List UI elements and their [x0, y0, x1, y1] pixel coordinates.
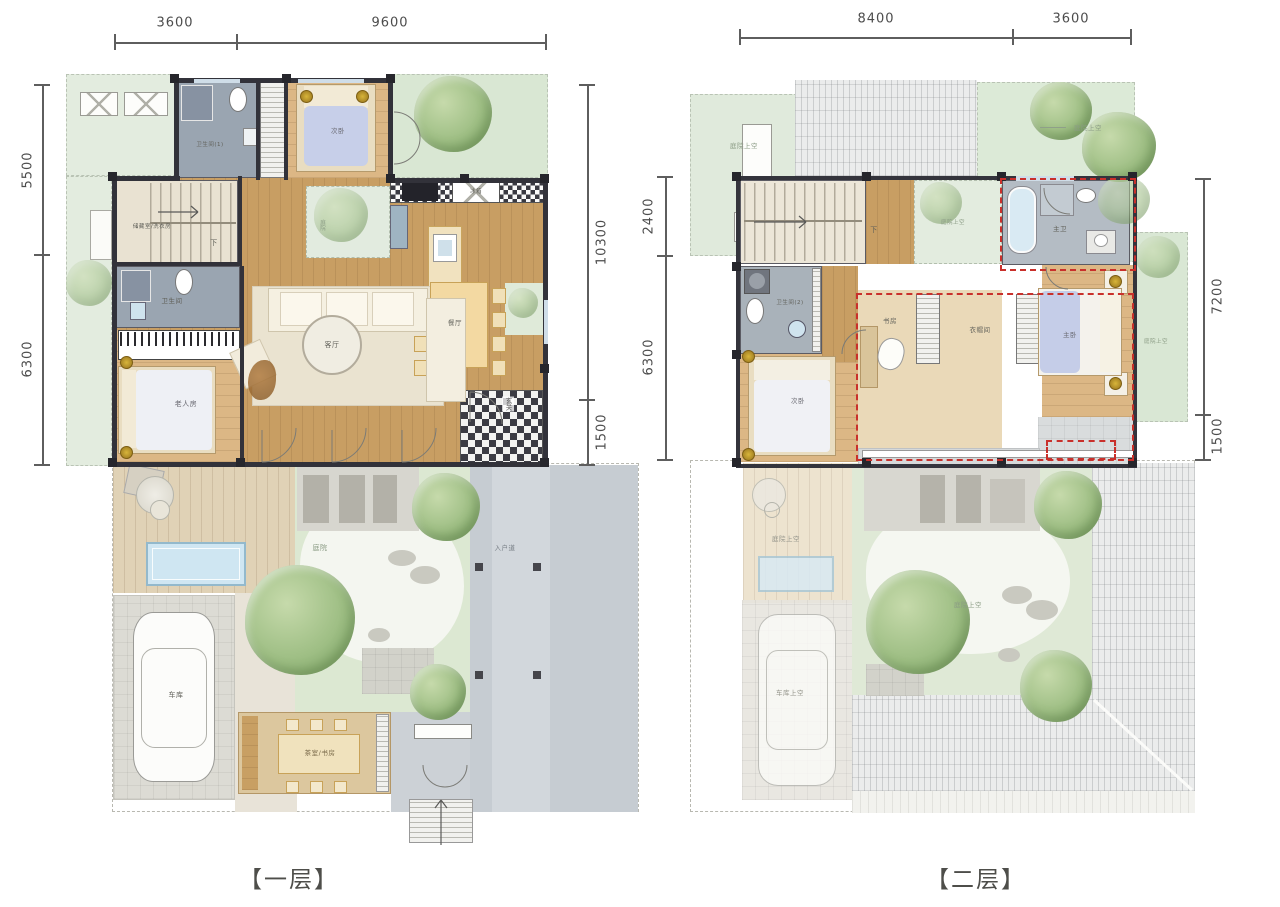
column: [460, 174, 469, 183]
fridge-label: 冰箱: [470, 187, 482, 195]
dimension-tick: [739, 29, 741, 45]
column: [386, 174, 395, 183]
sofa-cushion: [372, 292, 414, 326]
dim-f1-left-1: 5500: [21, 151, 36, 188]
dim-f1-top-2: 9600: [371, 16, 408, 31]
dimension-tick: [579, 84, 595, 86]
dimension-tick: [657, 459, 673, 461]
dining-chair: [492, 312, 506, 328]
dimension-tick: [579, 464, 595, 466]
walkway-path: [492, 465, 550, 812]
feature-stone: [303, 475, 329, 523]
red-dashed-bay-window: [1046, 440, 1116, 460]
dimension-line: [587, 85, 589, 465]
entry-bench: [414, 724, 472, 739]
dimension-tick: [1195, 178, 1211, 180]
column: [732, 262, 741, 271]
wall: [112, 462, 548, 467]
dimension-tick: [1130, 29, 1132, 45]
wall: [256, 80, 260, 180]
column: [386, 74, 395, 83]
inner-void-label: 庭院上空: [941, 218, 965, 226]
bed-duvet: [304, 106, 368, 166]
column: [540, 364, 549, 373]
dimension-tick: [657, 255, 673, 257]
dim-f1-right-1: 10300: [595, 219, 610, 265]
stepping-stone: [998, 648, 1020, 662]
wall: [112, 176, 117, 467]
walkway-label: 入户道: [495, 542, 516, 552]
wall: [112, 262, 240, 266]
kitchen-unit: [390, 205, 408, 249]
red-dashed-outline: [1000, 178, 1136, 271]
garden-tl-label: 庭院上空: [730, 140, 758, 150]
tree: [1020, 650, 1092, 722]
garage-label: 车库: [169, 690, 184, 700]
chaise: [426, 298, 466, 402]
roof-band: [852, 695, 1195, 791]
tree: [314, 188, 368, 242]
dining-chair: [492, 336, 506, 352]
dimension-line: [1203, 179, 1205, 460]
dimension-tick: [545, 34, 547, 50]
gold-lamp: [356, 90, 369, 103]
window: [544, 300, 548, 344]
stove: [402, 182, 438, 201]
column: [732, 350, 741, 359]
window: [298, 79, 364, 83]
stool: [286, 781, 299, 793]
dimension-line: [665, 177, 667, 460]
wall: [238, 176, 242, 266]
inner-garden-label: 庭院: [318, 220, 326, 231]
stepping-stone: [368, 628, 390, 642]
floor-plan-canvas: { "captions": {"floor1": "【一层】", "floor2…: [0, 0, 1280, 907]
courtyard-void-label: 庭院上空: [954, 599, 982, 609]
bed-pillow-band: [122, 370, 136, 448]
column: [108, 172, 117, 181]
dim-f2-right-1: 7200: [1211, 277, 1226, 314]
floor1-caption: 【一层】: [239, 860, 339, 894]
elder-room-label: 老人房: [175, 399, 198, 409]
shower: [181, 85, 213, 121]
red-dashed-outline: [856, 293, 1134, 461]
tree: [66, 260, 112, 306]
dining-chair: [492, 288, 506, 304]
column: [540, 458, 549, 467]
wall: [240, 266, 244, 462]
dimension-tick: [34, 464, 50, 466]
toilet: [229, 87, 247, 112]
pool-void: [758, 556, 834, 592]
bedroom-2-label: 次卧: [331, 125, 345, 135]
tree: [412, 473, 480, 541]
master-bedroom-label: 主卧: [1063, 329, 1077, 339]
post: [533, 671, 541, 679]
feature-stone: [339, 475, 365, 523]
dimension-line: [115, 42, 545, 44]
dimension-tick: [114, 34, 116, 50]
pergola-panel: [124, 92, 168, 116]
bathroom-1-label: 卫生间(1): [196, 140, 223, 148]
dimension-line: [42, 85, 44, 465]
entry-steps: [409, 799, 473, 843]
storage-label: 储藏室/洗衣房: [133, 222, 171, 230]
garden-tr-label: 庭院上空: [1074, 122, 1102, 132]
car-cabin: [766, 650, 828, 750]
dimension-tick: [236, 34, 238, 50]
column: [732, 172, 741, 181]
gold-lamp: [300, 90, 313, 103]
wall: [388, 78, 393, 183]
shoji-screen: [376, 714, 389, 792]
stepping-stone: [1026, 600, 1058, 620]
stool: [334, 781, 347, 793]
dimension-line: [740, 37, 1132, 39]
closet-label: 衣帽间: [970, 324, 991, 334]
piano-keys: [120, 332, 238, 346]
stair-direction-label: 下: [210, 238, 218, 248]
stepping-stone: [410, 566, 440, 584]
bathroom-2-label: 卫生间(2): [776, 298, 803, 306]
wall: [174, 78, 179, 180]
dim-f2-right-2: 1500: [1211, 417, 1226, 454]
sink: [130, 302, 146, 320]
feature-stone: [956, 475, 981, 523]
pergola-panel: [80, 92, 118, 116]
tree: [245, 565, 355, 675]
courtyard-label: 庭院: [313, 543, 328, 553]
wall: [112, 176, 180, 181]
island-sink-basin: [438, 240, 452, 256]
side-void-label: 庭院上空: [1144, 337, 1168, 345]
tree: [866, 570, 970, 674]
dining-label: 餐厅: [448, 317, 462, 327]
feature-stone: [373, 475, 397, 523]
garden-bench: [90, 210, 112, 260]
closet-strip: [260, 80, 286, 178]
column: [540, 174, 549, 183]
deck-table: [150, 500, 170, 520]
pool-rim: [152, 548, 240, 580]
gold-lamp: [120, 356, 133, 369]
tree: [1136, 236, 1180, 278]
stool: [286, 719, 299, 731]
label-leader-line: [1040, 127, 1066, 128]
dimension-tick: [34, 254, 50, 256]
dimension-tick: [1012, 29, 1014, 45]
stepping-stone: [1002, 586, 1032, 604]
stepping-stone: [388, 550, 416, 566]
garage-void-label: 车库上空: [776, 687, 804, 697]
tree: [1034, 471, 1102, 539]
stair-direction-label: 下: [870, 225, 878, 235]
paving-strip: [852, 791, 1195, 813]
toilet: [175, 269, 193, 295]
post: [533, 563, 541, 571]
deck-void-label: 庭院上空: [772, 533, 800, 543]
floor2-caption: 【二层】: [926, 860, 1026, 894]
shower: [121, 270, 151, 302]
wall: [284, 80, 288, 180]
column: [862, 172, 871, 181]
feature-stone: [990, 479, 1025, 523]
tea-cabinet: [242, 716, 258, 790]
column: [170, 74, 179, 83]
dimension-tick: [1195, 414, 1211, 416]
dim-f2-top-2: 3600: [1052, 12, 1089, 27]
bed-duvet: [136, 370, 212, 450]
column: [108, 458, 117, 467]
window: [194, 79, 240, 83]
living-label: 客厅: [325, 340, 340, 350]
dim-f2-left-1: 2400: [642, 197, 657, 234]
tree: [508, 288, 538, 318]
dining-chair: [492, 360, 506, 376]
stool: [334, 719, 347, 731]
stool: [310, 781, 323, 793]
column: [732, 458, 741, 467]
master-bath-label: 主卫: [1053, 223, 1067, 233]
study-label: 书房: [883, 315, 897, 325]
dim-f2-top-1: 8400: [857, 12, 894, 27]
tree: [414, 76, 492, 152]
stool: [310, 719, 323, 731]
post: [475, 671, 483, 679]
dim-f1-left-2: 6300: [21, 340, 36, 377]
dim-f1-top-1: 3600: [156, 16, 193, 31]
side-garden-upper: [66, 74, 176, 176]
feature-stone: [920, 475, 945, 523]
dimension-tick: [1195, 459, 1211, 461]
column: [282, 74, 291, 83]
dimension-tick: [657, 176, 673, 178]
post: [475, 563, 483, 571]
foyer-label: 玄关: [502, 397, 514, 412]
tree: [410, 664, 466, 720]
roof-band: [795, 80, 977, 176]
column: [236, 458, 245, 467]
dimension-tick: [34, 84, 50, 86]
dim-f2-left-2: 6300: [642, 338, 657, 375]
deck-table: [764, 502, 780, 518]
gold-lamp: [120, 446, 133, 459]
bedroom-2-label: 次卧: [791, 395, 805, 405]
dimension-tick: [579, 399, 595, 401]
tea-room-label: 茶室/书房: [305, 747, 336, 757]
dim-f1-right-2: 1500: [595, 413, 610, 450]
bathroom-label: 卫生间: [162, 295, 183, 305]
